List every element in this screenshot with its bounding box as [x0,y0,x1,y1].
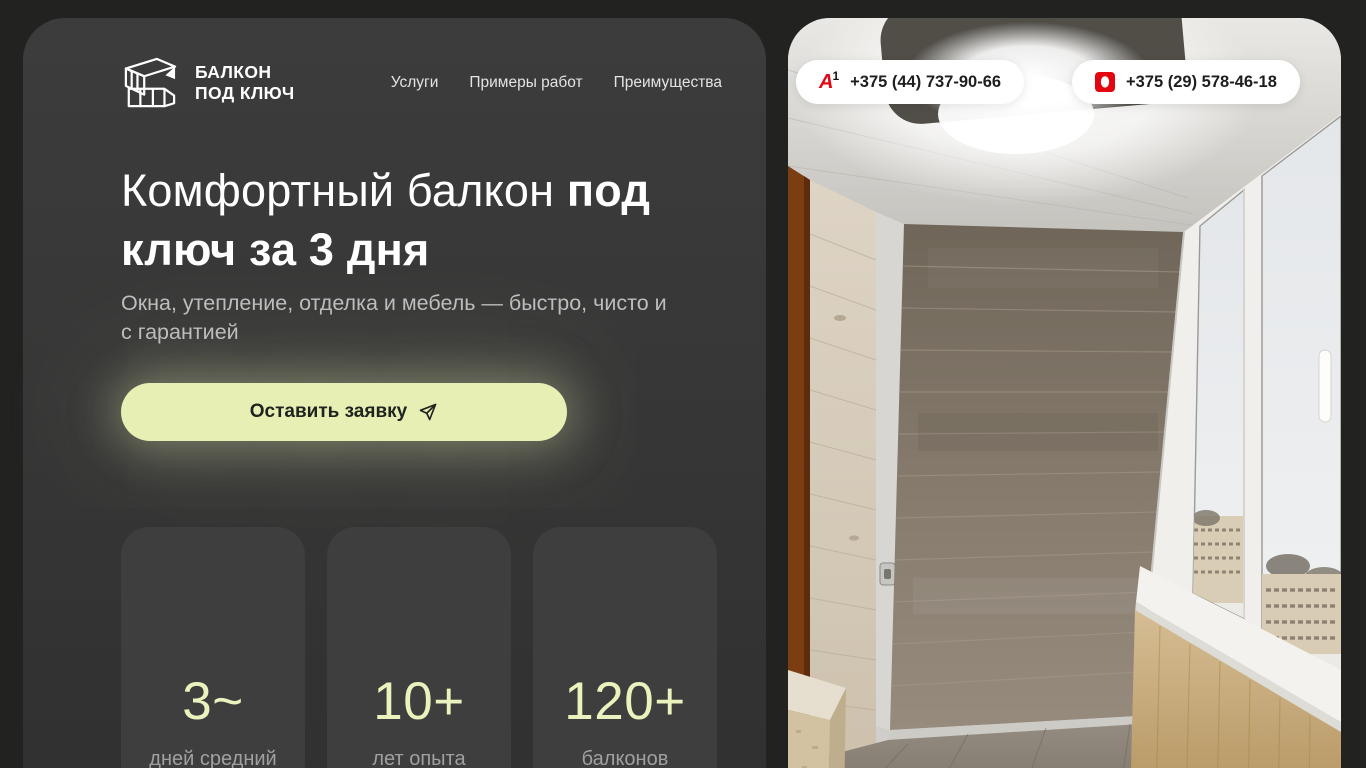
balcony-logo-icon [121,56,179,110]
phone-mts[interactable]: +375 (29) 578-46-18 [1072,60,1300,104]
request-button[interactable]: Оставить заявку [121,383,567,441]
stat-value: 120+ [564,673,685,731]
hero-subtitle: Окна, утепление, отделка и мебель — быст… [121,289,681,347]
stats-row: 3~ дней средний 10+ лет опыта 120+ балко… [121,527,722,768]
stat-caption: балконов [582,746,669,768]
phone-a1[interactable]: A1 +375 (44) 737-90-66 [796,60,1024,104]
stat-caption: дней средний [149,746,276,768]
mts-operator-icon [1095,72,1115,92]
request-button-label: Оставить заявку [250,401,407,423]
phone-number: +375 (29) 578-46-18 [1126,73,1277,92]
nav-item-advantages[interactable]: Преимущества [614,75,722,91]
nav-item-examples[interactable]: Примеры работ [469,75,582,91]
stat-caption: лет опыта [372,746,465,768]
send-icon [418,402,438,422]
stat-card-balconies: 120+ балконов [533,527,717,768]
hero-panel: БАЛКОН ПОД КЛЮЧ Услуги Примеры работ Пре… [23,18,766,768]
main-nav: Услуги Примеры работ Преимущества [391,75,722,91]
nav-item-services[interactable]: Услуги [391,75,439,91]
page-title: Комфортный балкон под ключ за 3 дня [121,161,731,279]
a1-operator-icon: A1 [819,72,839,92]
brand-logo[interactable]: БАЛКОН ПОД КЛЮЧ [121,56,295,110]
phone-number: +375 (44) 737-90-66 [850,73,1001,92]
stat-card-years: 10+ лет опыта [327,527,511,768]
stat-card-days: 3~ дней средний [121,527,305,768]
brand-name: БАЛКОН ПОД КЛЮЧ [195,62,295,103]
stat-value: 10+ [373,673,464,731]
stat-value: 3~ [182,673,243,731]
balcony-photo-panel: A1 +375 (44) 737-90-66 +375 (29) 578-46-… [788,18,1341,768]
balcony-photo-illustration [788,18,1341,768]
header: БАЛКОН ПОД КЛЮЧ Услуги Примеры работ Пре… [121,55,722,111]
